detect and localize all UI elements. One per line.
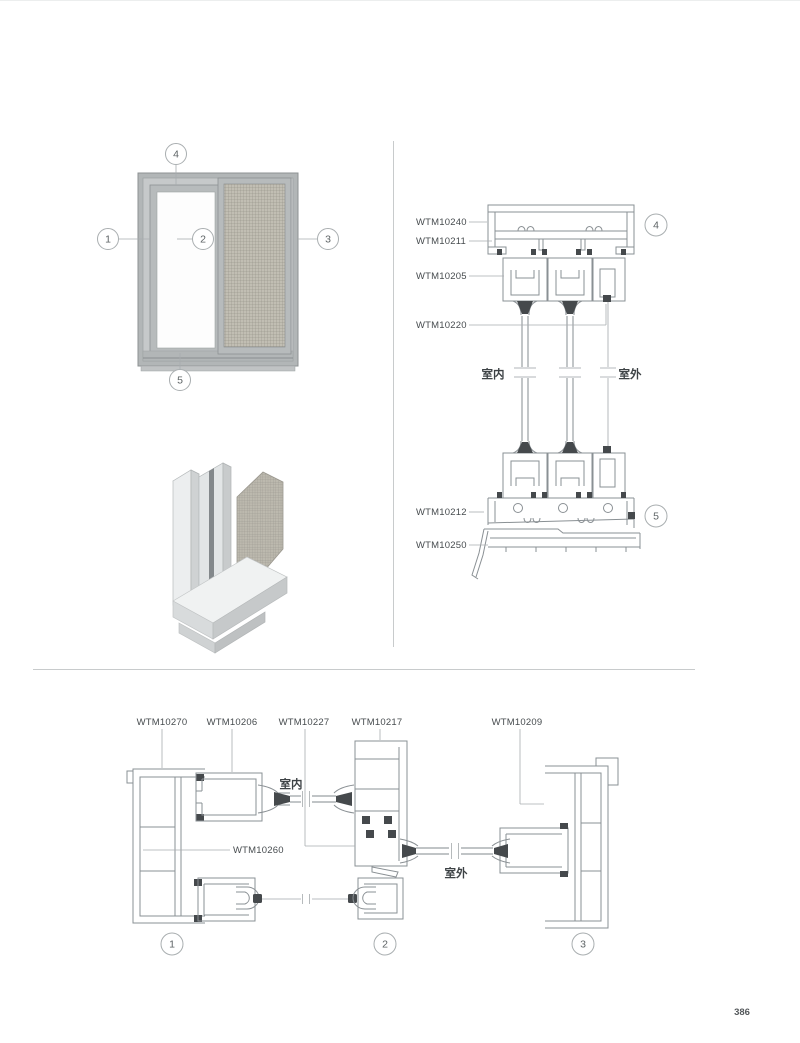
outdoor-label: 室外 [619,367,642,381]
section-callout-2: 2 [374,933,396,955]
iso-frame-jamb [173,470,199,605]
left-jamb-profile [127,769,205,923]
callout-4-number: 4 [173,149,179,161]
callout-1-number: 1 [105,234,111,246]
horizontal-divider [33,669,695,670]
part-label-wtm10205: WTM10205 [416,271,467,282]
vsection-leader-lines [469,222,606,545]
section-callout-2-number: 2 [382,939,388,951]
callout-4: 4 [166,144,187,165]
horizontal-section-drawing: WTM10270 WTM10206 WTM10227 WTM10217 WTM1… [110,701,620,966]
subsill-profile [472,529,640,579]
part-label-wtm10220: WTM10220 [416,320,467,331]
indoor-sash-stile [196,773,290,821]
center-stile-profile [334,741,418,877]
section-callout-3: 3 [572,933,594,955]
head-frame-profile [488,205,634,254]
screen-sash-stile [198,878,403,921]
part-label-wtm10240: WTM10240 [416,217,467,228]
part-label-wtm10209: WTM10209 [492,717,543,728]
hsection-leader-lines [143,729,544,850]
section-callout-1-number: 1 [169,939,175,951]
callout-3: 3 [318,229,339,250]
indoor-glass [290,791,336,807]
glass-sash [150,185,222,355]
window-elevation-drawing: 4 1 2 3 5 [60,131,360,401]
part-label-wtm10211: WTM10211 [416,236,466,247]
callout-2-number: 2 [200,234,206,246]
part-label-wtm10270: WTM10270 [137,717,188,728]
section-callout-1: 1 [161,933,183,955]
sash-column [503,258,547,498]
vertical-section-drawing: WTM10240 WTM10211 WTM10205 WTM10220 WTM1… [400,196,700,591]
indoor-label: 室内 [280,777,303,791]
part-label-wtm10206: WTM10206 [207,717,258,728]
section-callout-4: 4 [645,214,667,236]
right-jamb-profile [545,758,618,928]
section-callout-4-number: 4 [653,220,659,232]
callout-5-number: 5 [177,375,183,387]
head-gaskets [497,249,626,255]
part-label-wtm10217: WTM10217 [352,717,403,728]
part-label-wtm10250: WTM10250 [416,540,467,551]
isometric-profile-render [150,446,310,661]
screen-sash [218,178,291,354]
outdoor-sash-stile [492,823,568,877]
part-label-wtm10260: WTM10260 [233,845,284,856]
section-callout-5-number: 5 [653,511,659,523]
outdoor-label: 室外 [445,866,468,880]
part-label-wtm10212: WTM10212 [416,507,467,518]
sill-profile [488,492,635,528]
callout-2: 2 [193,229,214,250]
callout-5: 5 [170,370,191,391]
outdoor-glass [416,843,493,859]
callout-3-number: 3 [325,234,331,246]
section-callout-3-number: 3 [580,939,586,951]
indoor-label: 室内 [482,367,505,381]
section-callout-5: 5 [645,505,667,527]
vertical-divider [393,141,394,647]
callout-1: 1 [98,229,119,250]
page-number: 386 [730,1007,754,1018]
catalog-page: 4 1 2 3 5 [0,0,800,1043]
part-label-wtm10227: WTM10227 [279,717,330,728]
